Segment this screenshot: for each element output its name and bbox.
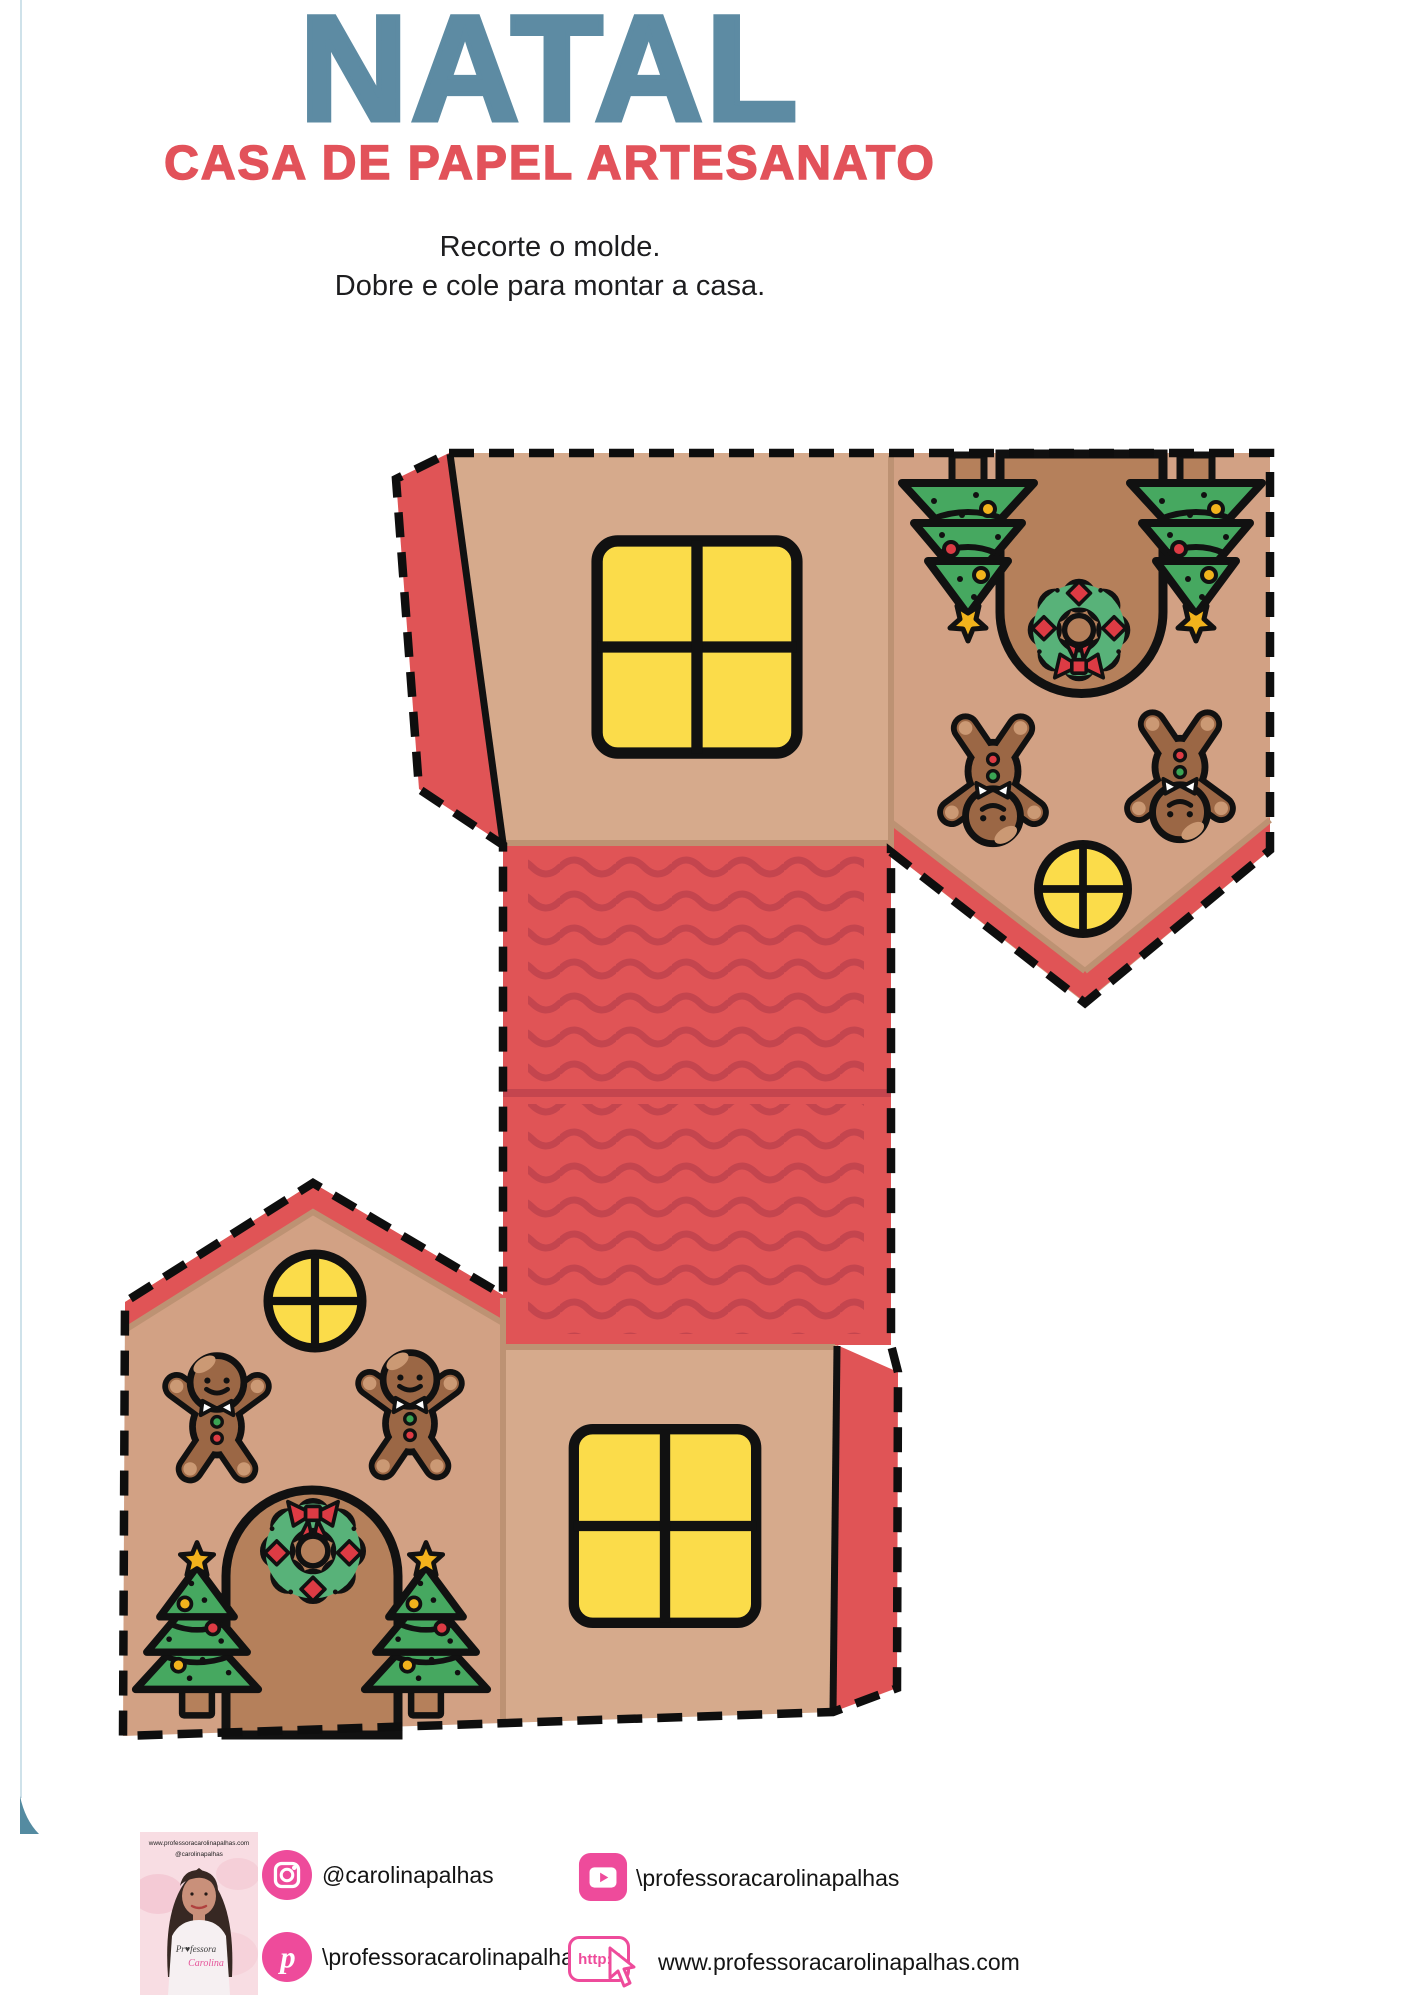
pinterest-handle: \professoracarolinapalhas [322, 1943, 585, 1971]
photo-caption-url: www.professoracarolinapalhas.com [148, 1840, 250, 1847]
four-pane-window-icon [574, 1429, 756, 1623]
shirt-text-1: Pr♥fessora [175, 1944, 217, 1954]
document-page: NATAL CASA DE PAPEL ARTESANATO Recorte o… [0, 0, 1414, 2000]
round-window-icon [1038, 844, 1127, 933]
roof-tiles-upper [528, 856, 864, 1082]
instagram-icon [262, 1850, 312, 1900]
glue-tab-right [833, 1345, 898, 1712]
youtube-icon [578, 1852, 628, 1902]
svg-text:p: p [277, 1941, 295, 1975]
photo-caption-handle: @carolinapalhas [175, 1851, 223, 1858]
round-window-icon [268, 1254, 362, 1348]
papercraft-house-template [0, 0, 1414, 2000]
pinterest-icon: p [262, 1932, 312, 1982]
youtube-handle: \professoracarolinapalhas [636, 1864, 899, 1892]
author-photo: www.professoracarolinapalhas.com @caroli… [140, 1832, 258, 1995]
website-url: www.professoracarolinapalhas.com [658, 1948, 1020, 1976]
instagram-handle: @carolinapalhas [322, 1861, 494, 1889]
four-pane-window-icon [597, 541, 797, 753]
wreath-icon [263, 1501, 363, 1601]
cursor-icon [606, 1946, 642, 1990]
shirt-text-2: Carolina [188, 1958, 224, 1969]
wreath-icon [1030, 581, 1127, 678]
roof-tiles-lower [528, 1104, 864, 1334]
